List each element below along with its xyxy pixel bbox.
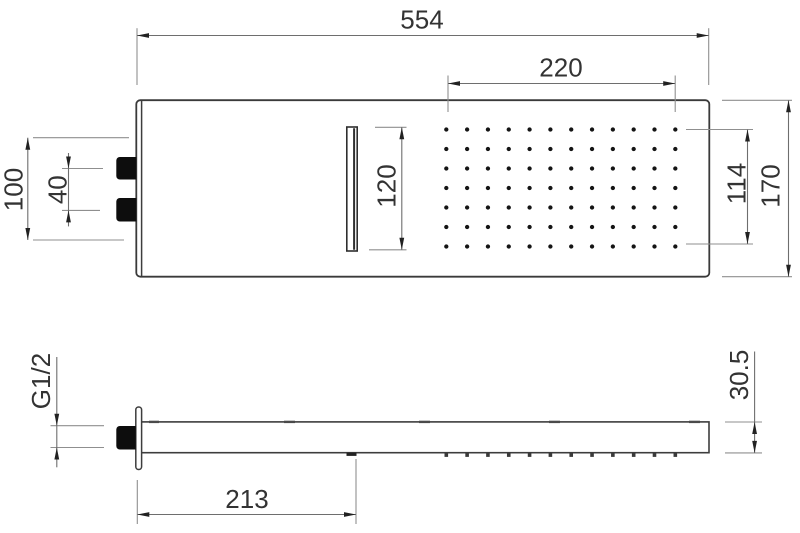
svg-text:170: 170 — [756, 164, 786, 207]
svg-text:213: 213 — [225, 484, 268, 514]
svg-text:G1/2: G1/2 — [26, 353, 56, 409]
svg-text:220: 220 — [539, 53, 582, 83]
svg-text:30.5: 30.5 — [724, 350, 754, 401]
svg-text:40: 40 — [43, 175, 73, 204]
svg-text:114: 114 — [722, 163, 752, 204]
svg-text:554: 554 — [400, 5, 443, 35]
svg-text:100: 100 — [0, 168, 29, 211]
svg-text:120: 120 — [372, 164, 402, 207]
